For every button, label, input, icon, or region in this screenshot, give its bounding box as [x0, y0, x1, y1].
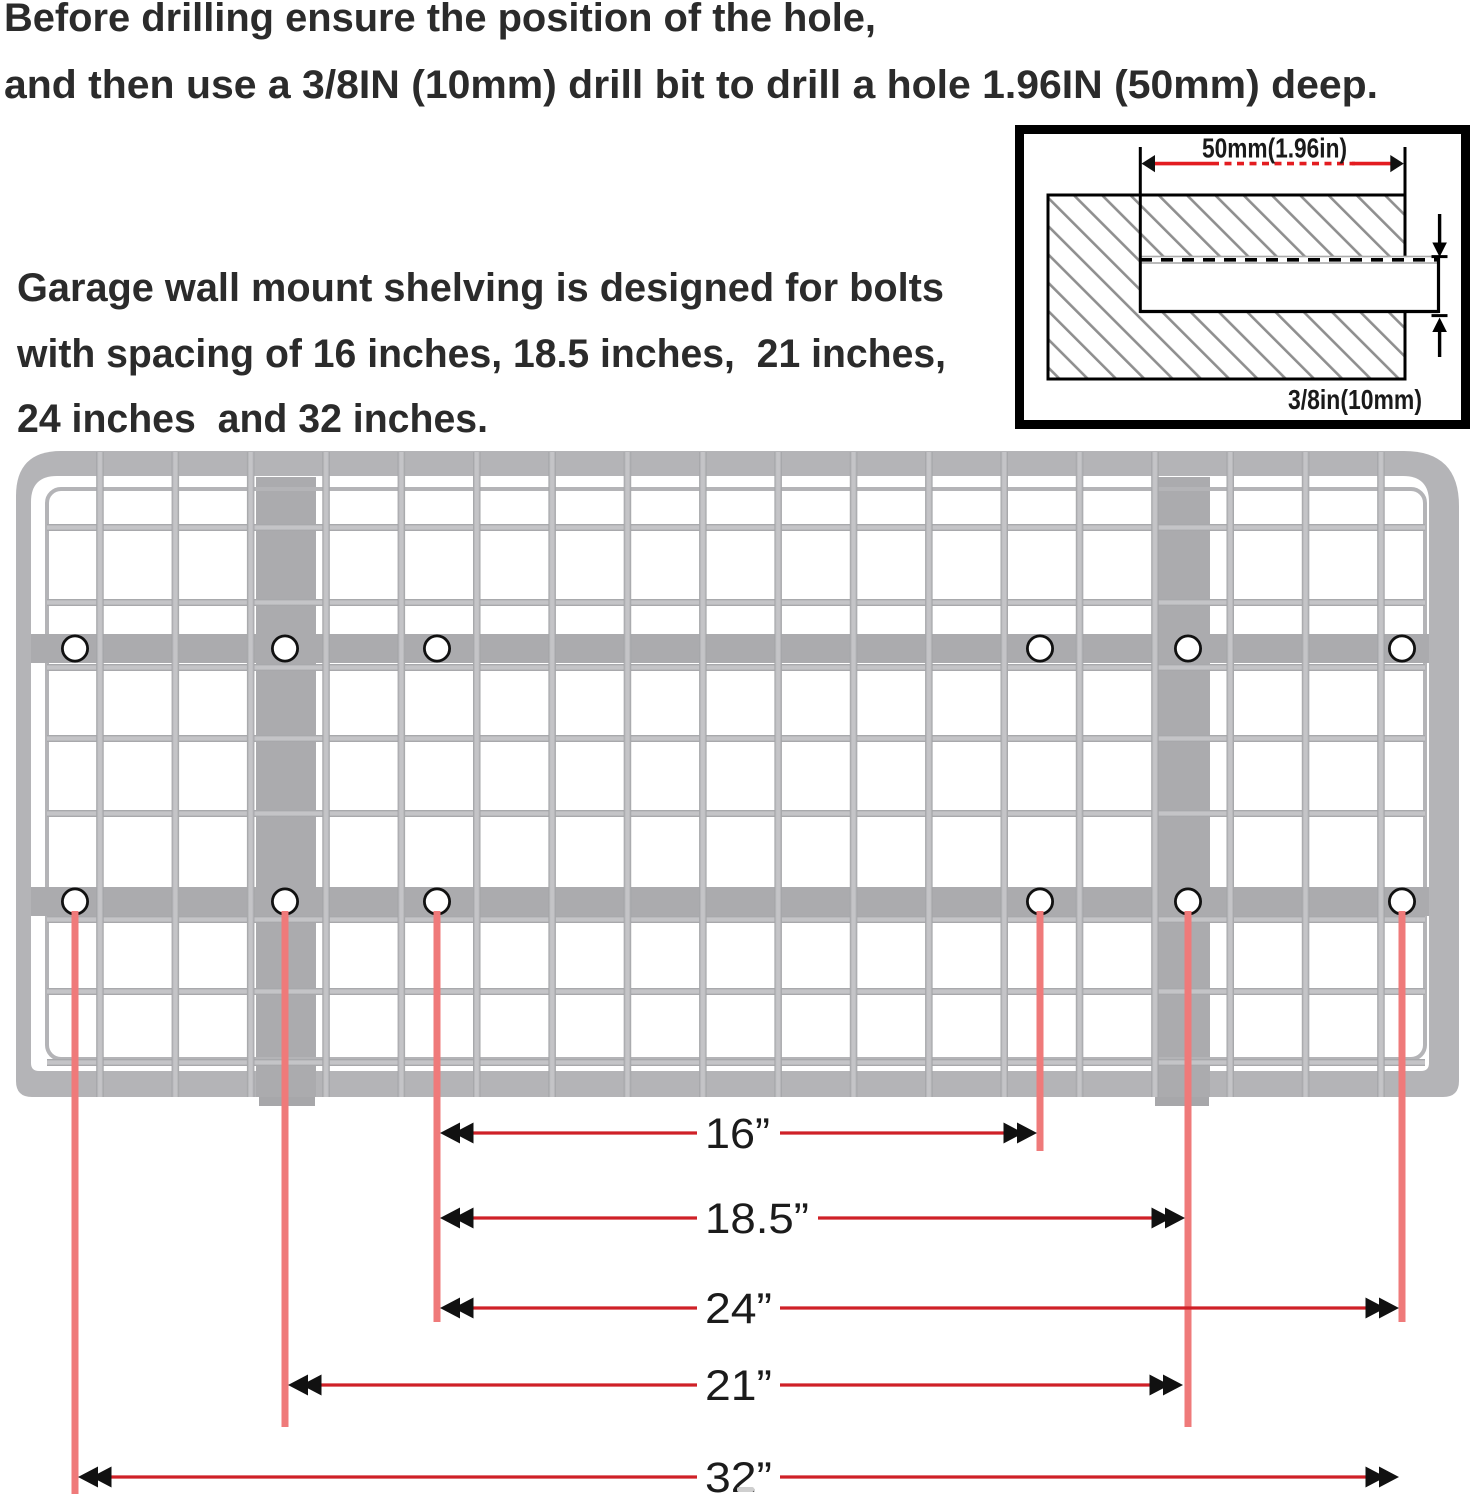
- svg-text:Garage wall mount shelving is: Garage wall mount shelving is designed f…: [17, 266, 944, 310]
- svg-text:50mm(1.96in): 50mm(1.96in): [1202, 133, 1347, 164]
- svg-text:32”: 32”: [705, 1454, 772, 1500]
- svg-text:and then use a 3/8IN (10mm) dr: and then use a 3/8IN (10mm) drill bit to…: [4, 63, 1378, 107]
- svg-text:21”: 21”: [705, 1362, 772, 1410]
- svg-text:3/8in(10mm): 3/8in(10mm): [1288, 384, 1422, 415]
- svg-text:18.5”: 18.5”: [705, 1195, 809, 1243]
- svg-text:16”: 16”: [705, 1110, 770, 1158]
- svg-text:Before drilling ensure the pos: Before drilling ensure the position of t…: [4, 0, 876, 40]
- svg-text:24 inches and 32 inches.: 24 inches and 32 inches.: [17, 397, 488, 441]
- svg-text:24”: 24”: [705, 1285, 772, 1333]
- svg-text:with spacing of 16 inches, 18.: with spacing of 16 inches, 18.5 inches, …: [16, 332, 946, 376]
